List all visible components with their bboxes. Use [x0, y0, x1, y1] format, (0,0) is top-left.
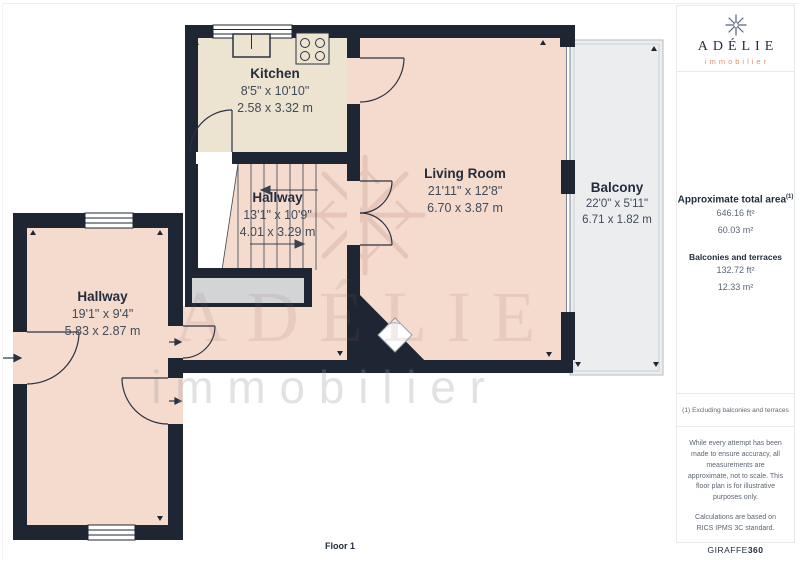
room-name: Living Room: [380, 166, 550, 181]
floorplan-page: ADÉLIE immobilier Kitchen 8'5" x 10'10" …: [0, 0, 800, 566]
giraffe360-brand: GIRAFFE360: [686, 544, 785, 557]
room-name: Balcony: [569, 180, 665, 195]
room-dims-imperial: 13'1" x 10'9": [205, 207, 350, 224]
room-dims-imperial: 22'0" x 5'11": [569, 197, 665, 213]
area-footnote-marker: (1): [786, 194, 793, 200]
area-title: Approximate total area: [678, 194, 786, 205]
sink-icon: [233, 34, 270, 57]
room-label-kitchen: Kitchen 8'5" x 10'10" 2.58 x 3.32 m: [200, 66, 350, 117]
room-dims-metric: 6.70 x 3.87 m: [380, 200, 550, 217]
room-dims-imperial: 21'11" x 12'8": [380, 183, 550, 200]
room-dims-imperial: 8'5" x 10'10": [200, 83, 350, 100]
disclaimer-standard: Calculations are based on RICS IPMS 3C s…: [686, 513, 785, 535]
balconies-area-ft: 132.72 ft²: [677, 262, 794, 279]
disclaimer-accuracy: While every attempt has been made to ens…: [686, 439, 785, 504]
stair-landing: [192, 278, 304, 303]
area-footnote: (1) Excluding balconies and terraces: [677, 394, 794, 427]
agency-name: ADÉLIE: [693, 39, 779, 55]
info-sidebar: ADÉLIE immobilier Approximate total area…: [676, 5, 795, 543]
room-dims-imperial: 19'1" x 9'4": [30, 306, 175, 323]
balconies-area-m: 12.33 m²: [677, 279, 794, 296]
floor-label: Floor 1: [300, 541, 380, 551]
room-label-living-room: Living Room 21'11" x 12'8" 6.70 x 3.87 m: [380, 166, 550, 217]
room-dims-metric: 6.71 x 1.82 m: [569, 213, 665, 229]
room-name: Kitchen: [200, 66, 350, 81]
area-summary: Approximate total area(1) 646.16 ft² 60.…: [677, 72, 794, 394]
room-name: Hallway: [30, 289, 175, 304]
room-dims-metric: 2.58 x 3.32 m: [200, 100, 350, 117]
balconies-title: Balconies and terraces: [677, 252, 794, 262]
room-label-stair-hallway: Hallway 13'1" x 10'9" 4.01 x 3.29 m: [205, 190, 350, 241]
room-label-entrance-hallway: Hallway 19'1" x 9'4" 5.83 x 2.87 m: [30, 289, 175, 340]
disclaimer: While every attempt has been made to ens…: [677, 427, 794, 566]
total-area-ft: 646.16 ft²: [677, 205, 794, 222]
room-dims-metric: 4.01 x 3.29 m: [205, 224, 350, 241]
agency-tagline: immobilier: [702, 57, 769, 66]
hob-icon: [296, 33, 329, 64]
snowflake-icon: [725, 14, 747, 36]
room-label-balcony: Balcony 22'0" x 5'11" 6.71 x 1.82 m: [569, 180, 665, 228]
room-dims-metric: 5.83 x 2.87 m: [30, 323, 175, 340]
total-area-m: 60.03 m²: [677, 222, 794, 239]
room-name: Hallway: [205, 190, 350, 205]
agency-logo: ADÉLIE immobilier: [677, 6, 794, 72]
